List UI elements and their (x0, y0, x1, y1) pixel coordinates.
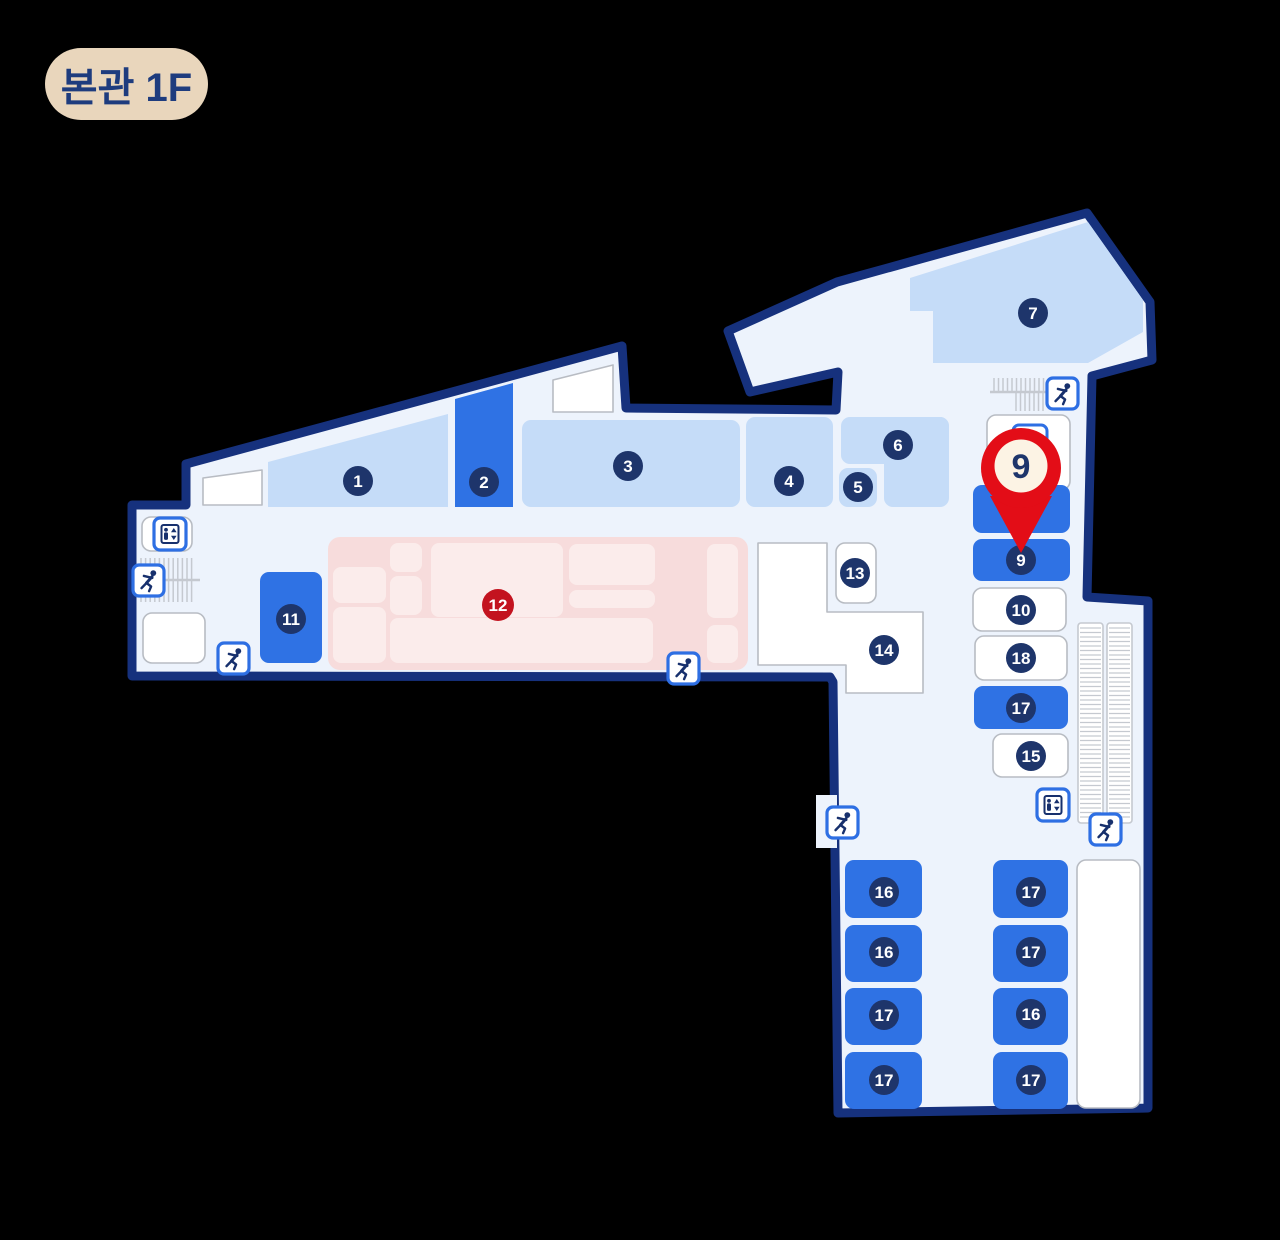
room-unlabeled-strip (1077, 860, 1140, 1108)
room-12-subarea (333, 607, 386, 663)
room-number-13: 13 (840, 558, 870, 588)
room-number-5: 5 (843, 472, 873, 502)
room-number-10: 10 (1006, 595, 1036, 625)
svg-text:17: 17 (875, 1071, 894, 1090)
svg-text:17: 17 (1022, 1071, 1041, 1090)
stairs-icon (1090, 814, 1121, 845)
room-number-12: 12 (482, 589, 514, 621)
room-number-6: 6 (883, 430, 913, 460)
room-number-16: 16 (1016, 999, 1046, 1029)
room-number-3: 3 (613, 451, 643, 481)
location-pin-label: 9 (1012, 448, 1031, 486)
svg-text:2: 2 (479, 473, 488, 492)
room-12-subarea (390, 618, 653, 663)
room-number-15: 15 (1016, 741, 1046, 771)
svg-text:16: 16 (1022, 1005, 1041, 1024)
elevator-icon (1037, 789, 1069, 821)
svg-text:18: 18 (1012, 649, 1031, 668)
room-number-16: 16 (869, 877, 899, 907)
svg-text:16: 16 (875, 943, 894, 962)
room-number-16: 16 (869, 937, 899, 967)
room-number-1: 1 (343, 466, 373, 496)
room-12-subarea (390, 543, 422, 572)
room-12-subarea (333, 567, 386, 603)
svg-text:3: 3 (623, 457, 632, 476)
svg-text:12: 12 (489, 596, 508, 615)
svg-text:5: 5 (853, 478, 862, 497)
svg-text:11: 11 (282, 610, 300, 629)
floor-badge: 본관 1F (45, 48, 208, 120)
svg-text:1: 1 (353, 472, 362, 491)
room-number-11: 11 (276, 604, 306, 634)
floor-map: 1234567910111314151718161617171717161712… (0, 0, 1280, 1240)
svg-text:17: 17 (875, 1006, 894, 1025)
room-number-2: 2 (469, 467, 499, 497)
svg-text:9: 9 (1016, 551, 1025, 570)
room-12-subarea (569, 590, 655, 608)
stairs-icon (133, 565, 164, 596)
svg-text:13: 13 (846, 564, 865, 583)
stairs-icon (827, 807, 858, 838)
elevator-icon (154, 518, 186, 550)
room-number-17: 17 (1016, 937, 1046, 967)
stairs-icon (1047, 378, 1078, 409)
room-12-subarea (707, 625, 738, 663)
room-6[interactable] (884, 417, 949, 507)
room-number-17: 17 (869, 1065, 899, 1095)
room-number-17: 17 (869, 1000, 899, 1030)
svg-text:10: 10 (1012, 601, 1031, 620)
svg-text:14: 14 (875, 641, 894, 660)
floor-map-canvas: 본관 1F 1234567910111314151718161617171717… (0, 0, 1280, 1240)
room-number-17: 17 (1016, 1065, 1046, 1095)
room-number-17: 17 (1006, 693, 1036, 723)
svg-text:4: 4 (784, 472, 794, 491)
svg-text:16: 16 (875, 883, 894, 902)
svg-text:6: 6 (893, 436, 902, 455)
room-number-18: 18 (1006, 643, 1036, 673)
svg-text:15: 15 (1022, 747, 1041, 766)
svg-text:17: 17 (1022, 943, 1041, 962)
svg-text:17: 17 (1012, 699, 1031, 718)
room-12-subarea (707, 544, 738, 618)
room-number-14: 14 (869, 635, 899, 665)
svg-text:17: 17 (1022, 883, 1041, 902)
room-number-17: 17 (1016, 877, 1046, 907)
stairs-icon (668, 653, 699, 684)
floor-badge-label: 본관 1F (61, 55, 192, 113)
stairs-icon (218, 643, 249, 674)
room-number-4: 4 (774, 466, 804, 496)
room-12-subarea (569, 544, 655, 585)
room-12-subarea (390, 576, 422, 615)
room-number-7: 7 (1018, 298, 1048, 328)
svg-text:7: 7 (1028, 304, 1037, 323)
room-unlabeled-bottomleft (143, 613, 205, 663)
